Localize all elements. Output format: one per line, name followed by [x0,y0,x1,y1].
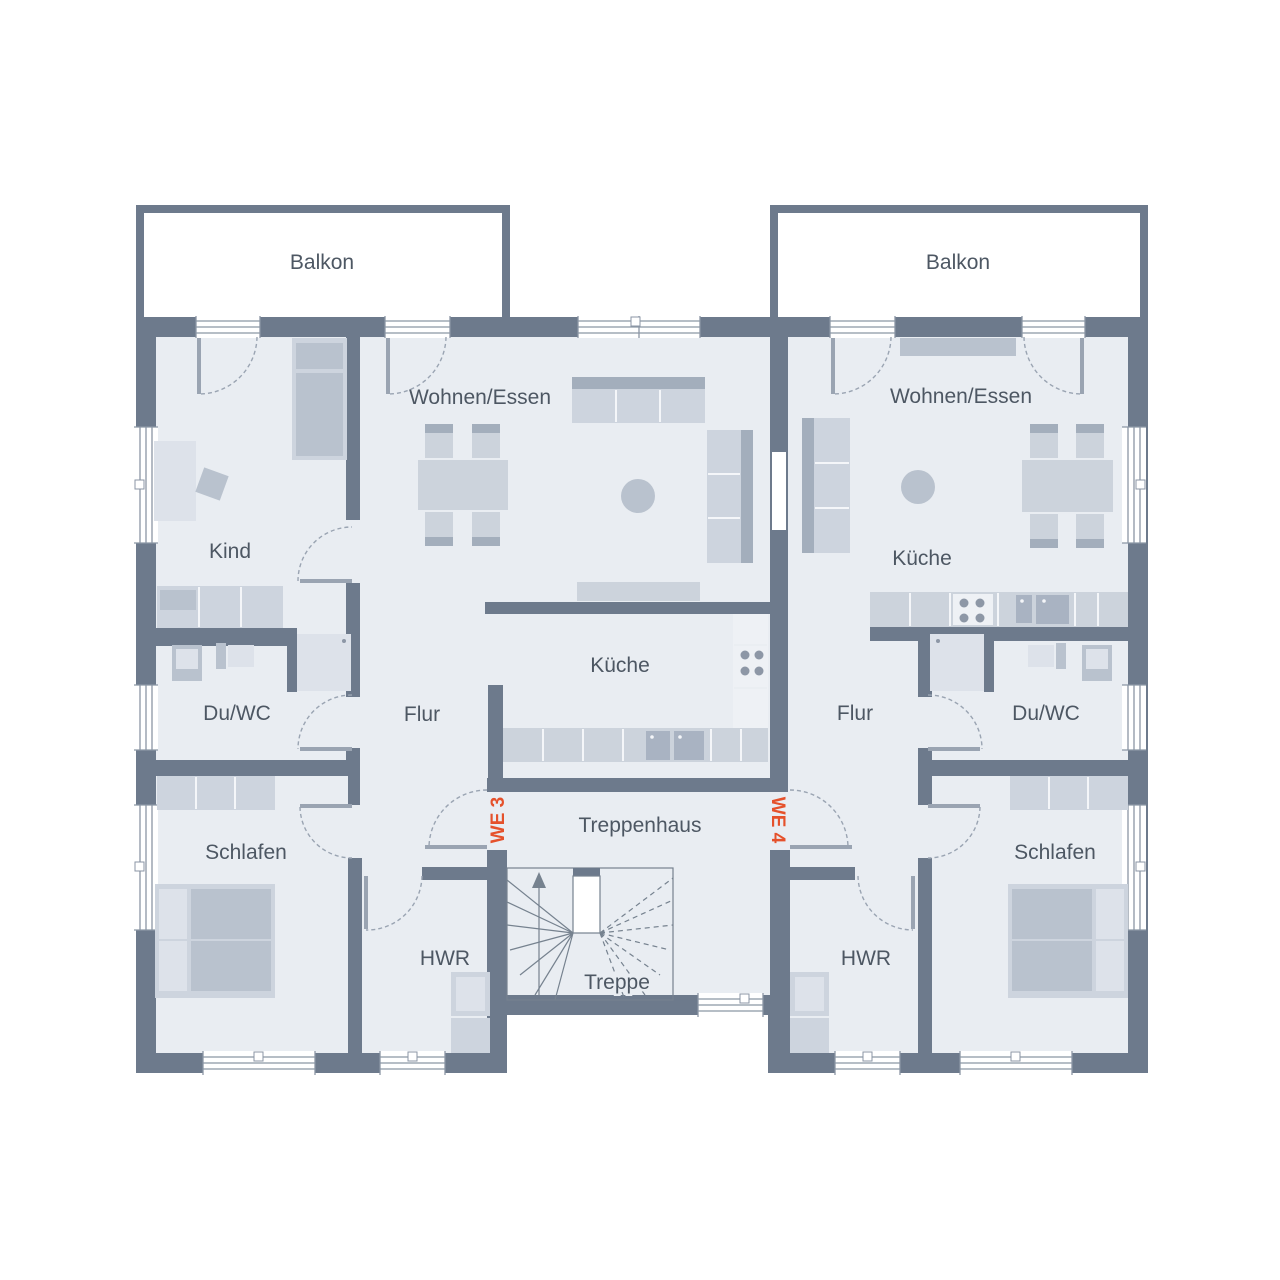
balcony-door-wohnen-right-1 [830,316,895,338]
label-kueche-left: Küche [590,654,650,677]
furniture-hwr-left [451,972,490,1053]
label-flur-left: Flur [404,703,440,726]
balcony-door-wohnen-left [385,316,450,338]
label-wohnen-right: Wohnen/Essen [890,385,1032,408]
label-schlafen-right: Schlafen [1014,841,1096,864]
window-schlafen-right-bottom [960,1051,1072,1075]
window-wohnen-left-top [578,316,700,338]
label-duwc-right: Du/WC [1012,702,1080,725]
floor-plan: Balkon Balkon Wohnen/Essen Wohnen/Essen … [0,0,1280,1280]
label-schlafen-left: Schlafen [205,841,287,864]
label-hwr-left: HWR [420,947,470,970]
wall-shaft [772,452,786,530]
window-schlafen-left-bottom [203,1051,315,1075]
balcony-door-kind [196,316,260,338]
furniture-schlafen-left [155,776,275,998]
balcony-door-wohnen-right-2 [1022,316,1085,338]
label-duwc-left: Du/WC [203,702,271,725]
window-wohnen-right [1122,427,1146,543]
label-unit-we4: WE 4 [767,797,788,844]
window-hwr-left-bottom [380,1051,445,1075]
label-unit-we3: WE 3 [488,797,509,843]
furniture-hwr-right [790,972,829,1053]
label-hwr-right: HWR [841,947,891,970]
label-kind: Kind [209,540,251,563]
label-kueche-right: Küche [892,547,952,570]
building-floor [136,317,1148,1073]
label-balkon-right: Balkon [926,251,990,274]
label-balkon-left: Balkon [290,251,354,274]
window-hwr-right-bottom [835,1051,900,1075]
window-schlafen-left [134,805,158,930]
furniture-schlafen-right [1008,776,1128,998]
window-duwc-left [134,685,158,750]
label-flur-right: Flur [837,702,873,725]
window-duwc-right [1122,685,1146,750]
window-treppenhaus [698,993,763,1017]
entrance-recess [507,1015,768,1073]
label-wohnen-left: Wohnen/Essen [409,386,551,409]
label-treppenhaus: Treppenhaus [579,814,702,837]
furniture-kueche-right [870,592,1128,627]
label-treppe: Treppe [584,971,650,994]
